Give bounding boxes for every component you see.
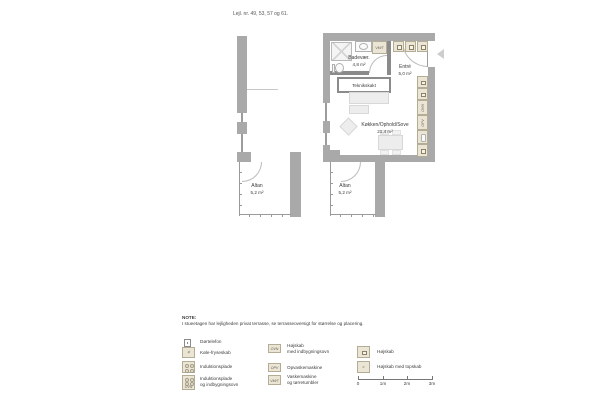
dining-table [378, 135, 403, 150]
cabinet-code: OPV [421, 119, 425, 127]
exterior-wall [237, 122, 247, 134]
exterior-wall [428, 67, 435, 162]
plan-title: Lejl. nr. 49, 53, 57 og 61. [233, 11, 288, 17]
cabinet-code: VM/T [373, 46, 386, 50]
oven-cabinet: OVN [417, 100, 428, 115]
exterior-wall [323, 33, 330, 103]
exterior-wall [290, 152, 301, 217]
exterior-wall [328, 33, 435, 41]
legend-label: Køle-fryseskab [200, 350, 231, 356]
room-label-living: Køkken/Ophold/Sove 21,4 m² [353, 122, 417, 134]
floorplan-page: Lejl. nr. 49, 53, 57 og 61. Altan 5,2 m²… [0, 0, 600, 400]
legend-label: Højskab [377, 349, 394, 355]
fridge-freezer-icon: ∗ [182, 347, 195, 358]
fridge-mark: ∗ [183, 349, 194, 355]
hob-ring [185, 369, 189, 373]
exterior-wall [330, 150, 340, 162]
hob-ring [190, 364, 194, 368]
scale-tick [358, 376, 359, 380]
kitchen-sink-cabinet [417, 130, 428, 144]
legend-item-cabinet-oven: Højskab med indbygningsovn [287, 343, 329, 355]
door-swing-arc [242, 162, 262, 182]
cabinet-code: OPV [269, 366, 280, 370]
dishwasher-icon: OPV [268, 363, 281, 372]
dishwasher-cabinet: OPV [417, 115, 428, 130]
scale-label: 0 [352, 381, 364, 386]
legend-item-washer-dryer: Vaskemaskine og tørretumbler [287, 374, 318, 386]
exterior-wall [237, 152, 251, 162]
scale-tick [407, 376, 408, 380]
legend-label: med indbygningsovn [287, 349, 329, 355]
scale-tick [383, 376, 384, 380]
bed-bench [349, 105, 369, 114]
window [325, 103, 327, 121]
scale-label: 1m [377, 381, 389, 386]
exterior-wall [375, 162, 385, 217]
scale-label: 2m [401, 381, 413, 386]
window [241, 113, 243, 122]
legend-item-tall-cabinet: Højskab [377, 349, 394, 355]
legend-label: Induktionsplade [200, 364, 232, 370]
balcony-railing [239, 214, 291, 217]
kitchen-sink [421, 134, 426, 142]
note-block: NOTE: I stueetagen har lejligheden priva… [182, 315, 462, 328]
room-area: 5,2 m² [328, 190, 362, 196]
hob-ring [190, 369, 194, 373]
cabinet-code: OVN [183, 385, 194, 389]
washer-dryer-icon: VM/T [268, 375, 281, 385]
scale-tick [432, 376, 433, 380]
legend-item-tall-cabinet-top: Højskab med topskab [377, 364, 421, 370]
legend-item-dishwasher: Opvaskemaskine [287, 365, 322, 371]
room-label-bathroom: Badevær. 4,8 m² [334, 55, 384, 67]
room-area: 21,4 m² [353, 129, 417, 135]
legend-item-fridge: Køle-fryseskab [200, 350, 231, 356]
induction-hob-icon [182, 361, 195, 373]
door-swing-arc [341, 162, 361, 182]
unit-divider-line [247, 89, 278, 90]
induction-hob-oven-icon: OVN [182, 375, 195, 390]
tall-cabinet-top-icon: × [357, 361, 370, 373]
window [241, 134, 243, 152]
legend-label: og tørretumbler [287, 380, 318, 386]
balcony-railing [330, 214, 376, 217]
tall-cabinet [417, 76, 428, 88]
tall-cabinet [417, 88, 428, 100]
exterior-wall [323, 145, 330, 162]
exterior-wall [323, 121, 330, 133]
legend-label: Højskab med topskab [377, 364, 421, 370]
legend-label: og indbygningsovn [200, 382, 238, 388]
room-area: 5,0 m² [390, 71, 420, 77]
scale-label: 3m [426, 381, 438, 386]
legend-label: Opvaskemaskine [287, 365, 322, 371]
cabinet-code: OVN [421, 104, 425, 112]
window [325, 133, 327, 145]
scale-bar [358, 379, 433, 380]
room-area: 4,8 m² [334, 62, 384, 68]
legend-item-induction: Induktionsplade [200, 364, 232, 370]
tall-cabinet-icon [357, 346, 370, 358]
technical-shaft: Teknikskakt [337, 77, 391, 93]
cabinet-code: VM/T [269, 379, 280, 383]
room-label-balcony-right: Altan 5,2 m² [328, 183, 362, 195]
legend-item-doorphone: Dørtelefon [200, 339, 221, 345]
cabinet-code: OVN [269, 347, 280, 351]
chair [392, 150, 401, 155]
note-text: I stueetagen har lejligheden privat terr… [182, 321, 364, 326]
hob-ring [190, 378, 194, 382]
hob-ring [185, 364, 189, 368]
bed [349, 92, 389, 104]
room-name: Teknikskakt [352, 83, 376, 88]
entry-arrow-icon [437, 49, 444, 59]
washbasin-bowl [359, 43, 368, 50]
tall-cabinet [417, 144, 428, 157]
room-name: Køkken/Ophold/Sove [353, 122, 417, 129]
legend-label: Dørtelefon [200, 339, 221, 345]
tall-cabinet [417, 41, 428, 52]
washer-dryer-cabinet: VM/T [372, 41, 387, 54]
door-phone-icon [184, 339, 191, 347]
room-label-entry: Entré 5,0 m² [390, 64, 420, 76]
tall-cabinet-oven-icon: OVN [268, 344, 281, 353]
exterior-wall [237, 36, 247, 113]
room-area: 5,2 m² [240, 190, 274, 196]
room-label-balcony-left: Altan 5,2 m² [240, 183, 274, 195]
chair [380, 150, 389, 155]
hob-ring [185, 378, 189, 382]
legend-item-induction-oven: Induktionsplade og indbygningsovn [200, 376, 238, 388]
topskab-mark: × [358, 364, 369, 369]
tall-cabinet [405, 41, 416, 52]
tall-cabinet [393, 41, 404, 52]
